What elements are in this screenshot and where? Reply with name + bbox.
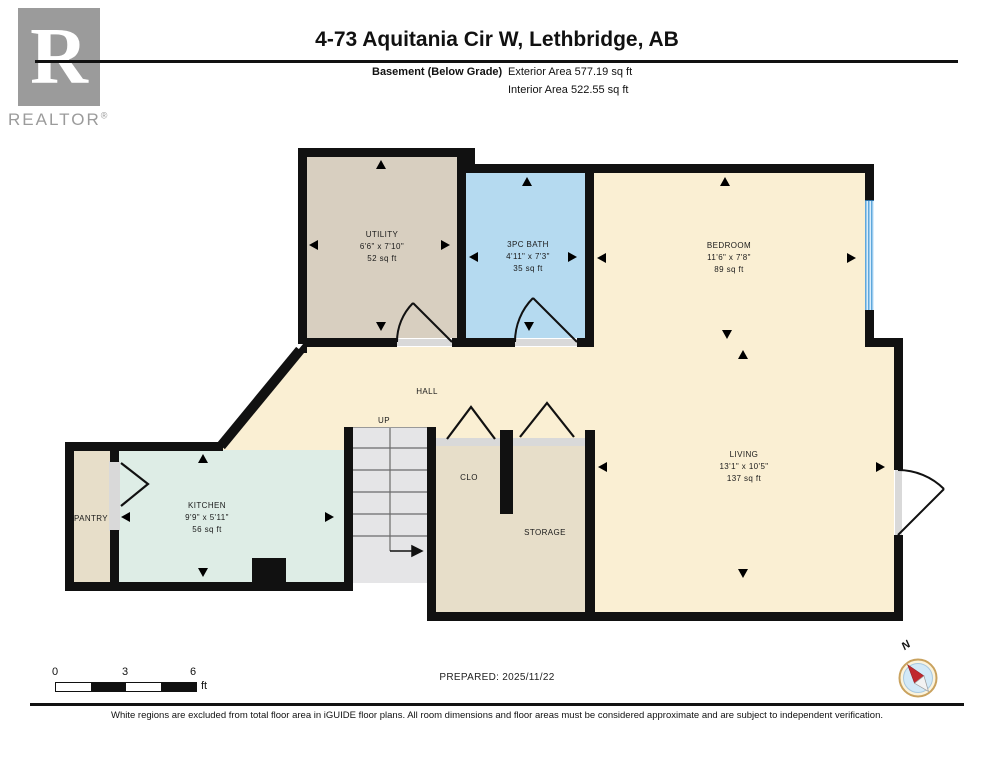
dim-arrow <box>469 252 478 262</box>
wall <box>585 430 595 621</box>
dim-arrow <box>598 462 607 472</box>
bath-door-threshold <box>515 339 577 346</box>
label-utility: UTILITY6'6" x 7'10"52 sq ft <box>360 229 404 265</box>
label-clo: CLO <box>460 472 478 484</box>
wall <box>452 338 466 347</box>
footer-divider <box>30 703 964 706</box>
room-kitchen <box>119 450 344 582</box>
dim-arrow <box>876 462 885 472</box>
wall <box>466 338 515 347</box>
wall <box>110 530 119 582</box>
wall <box>65 442 223 451</box>
wall <box>457 157 466 347</box>
realtor-wordmark: REALTOR® <box>8 110 128 130</box>
disclaimer-text: White regions are excluded from total fl… <box>0 710 994 721</box>
pantry-door-threshold <box>109 461 120 531</box>
floor-plan-page: R REALTOR® 4-73 Aquitania Cir W, Lethbri… <box>0 0 994 768</box>
interior-area: Interior Area 522.55 sq ft <box>508 84 628 96</box>
realtor-logo: R <box>18 8 100 106</box>
dim-arrow <box>325 512 334 522</box>
utility-door-threshold <box>397 339 452 346</box>
dim-arrow <box>597 253 606 263</box>
scale-bar <box>55 682 197 692</box>
wall <box>344 427 353 591</box>
page-title: 4-73 Aquitania Cir W, Lethbridge, AB <box>0 28 994 52</box>
dim-arrow <box>738 569 748 578</box>
exterior-area: Exterior Area 577.19 sq ft <box>508 66 632 78</box>
dim-arrow <box>738 350 748 359</box>
wall <box>298 148 475 157</box>
dim-arrow <box>376 160 386 169</box>
bedroom-window <box>865 200 874 312</box>
label-bath: 3PC BATH4'11" x 7'3"35 sq ft <box>506 239 550 275</box>
dim-arrow <box>720 177 730 186</box>
clo-door-threshold <box>436 438 500 446</box>
room-storage-lower <box>436 514 513 612</box>
wall <box>298 148 307 353</box>
compass-rose: N <box>884 634 952 708</box>
living-door-threshold <box>895 470 902 535</box>
dim-arrow <box>121 512 130 522</box>
header-divider <box>35 60 958 63</box>
label-kitchen: KITCHEN9'9" x 5'11"56 sq ft <box>185 500 229 536</box>
floor-label: Basement (Below Grade) <box>372 66 502 78</box>
wall <box>865 164 874 200</box>
wall <box>427 612 903 621</box>
wall <box>894 535 903 620</box>
dim-arrow <box>309 240 318 250</box>
dim-arrow <box>198 454 208 463</box>
compass-north-label: N <box>899 638 913 653</box>
label-living: LIVING13'1" x 10'5"137 sq ft <box>719 449 768 485</box>
prepared-date: PREPARED: 2025/11/22 <box>0 672 994 683</box>
room-hall-west <box>223 347 307 450</box>
dim-arrow <box>441 240 450 250</box>
wall <box>585 173 594 347</box>
dim-arrow <box>524 322 534 331</box>
dim-arrow <box>568 252 577 262</box>
realtor-logo-letter: R <box>30 13 88 101</box>
staircase <box>353 427 427 583</box>
living-door-leaf <box>898 489 944 535</box>
dim-arrow <box>376 322 386 331</box>
label-storage: STORAGE <box>524 527 566 539</box>
living-door-arc <box>898 470 944 489</box>
wall <box>65 582 353 591</box>
dim-arrow <box>847 253 856 263</box>
wall <box>298 338 397 347</box>
wall <box>65 442 74 591</box>
wall <box>500 430 513 514</box>
dim-arrow <box>198 568 208 577</box>
registered-mark: ® <box>101 110 110 120</box>
wall <box>894 338 903 470</box>
label-up: UP <box>378 415 390 427</box>
dim-arrow <box>722 330 732 339</box>
label-bedroom: BEDROOM11'6" x 7'8"89 sq ft <box>707 240 751 276</box>
label-hall: HALL <box>416 386 438 398</box>
wall <box>577 338 594 347</box>
wall <box>466 164 874 173</box>
wall-stub <box>252 558 286 591</box>
label-pantry: PANTRY <box>74 513 108 525</box>
storage-door-threshold <box>513 438 585 446</box>
wall <box>110 450 119 462</box>
wall <box>427 427 436 621</box>
dim-arrow <box>522 177 532 186</box>
